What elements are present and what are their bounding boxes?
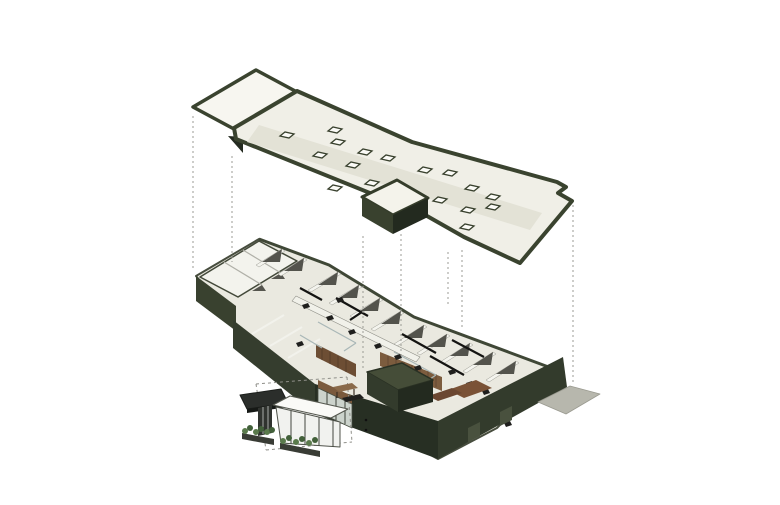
wall-fixture [365,419,368,422]
wall-fixture [365,429,368,432]
planter-shrub [269,427,275,433]
planter-shrub [280,438,286,444]
planter-shrub [306,440,312,446]
diagram-canvas [0,0,780,505]
roof-skylight [328,185,342,191]
planter-shrub [299,436,305,442]
planter-shrub [253,429,259,435]
planter-shrub [247,425,253,431]
planter-shrub [293,439,299,445]
planter-shrub [258,426,264,432]
exploded-axonometric-diagram [0,0,780,505]
planter-shrub [242,428,248,434]
planter-shrub [286,435,292,441]
planter-shrub [312,437,318,443]
